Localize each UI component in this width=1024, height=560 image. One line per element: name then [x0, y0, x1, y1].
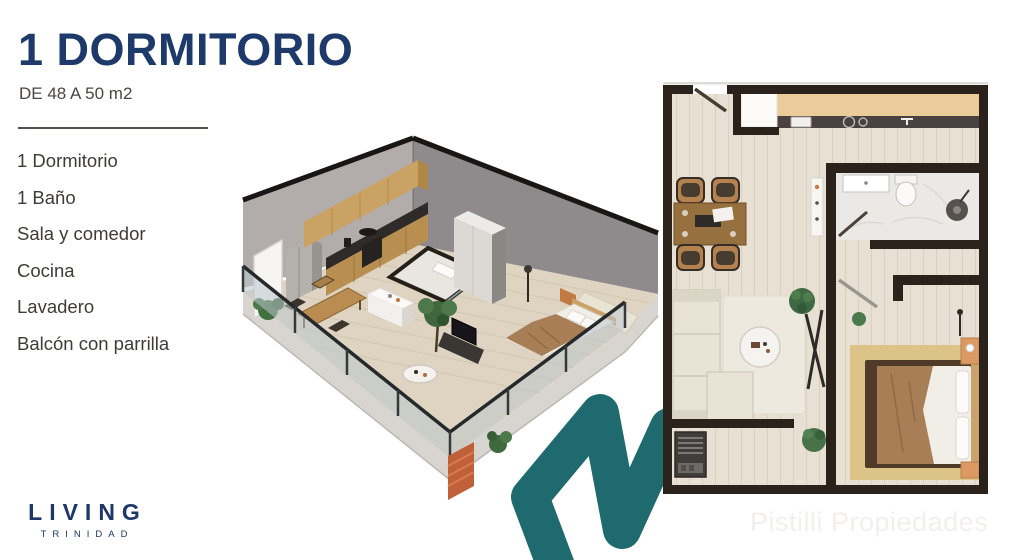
hall-shelf	[811, 178, 823, 236]
watermark: Pistilli Propiedades	[750, 507, 988, 538]
coffee-table-3d	[403, 365, 437, 383]
bathroom-2d	[836, 173, 979, 240]
brand-logo: LIVING TRINIDAD	[16, 499, 152, 540]
top-view-floorplan	[663, 82, 988, 494]
brochure-page: 1 DORMITORIO DE 48 A 50 m2 1 Dormitorio …	[0, 0, 1024, 560]
feature-item: Sala y comedor	[17, 216, 169, 253]
page-subtitle: DE 48 A 50 m2	[19, 84, 132, 104]
feature-item: Balcón con parrilla	[17, 326, 169, 363]
brand-name: LIVING	[23, 499, 152, 526]
laundry-closet	[741, 92, 777, 127]
brand-location: TRINIDAD	[22, 529, 152, 540]
wardrobe	[454, 211, 506, 304]
feature-item: Lavadero	[17, 289, 169, 326]
feature-item: Cocina	[17, 253, 169, 290]
page-title: 1 DORMITORIO	[18, 24, 353, 76]
kitchen-2d	[777, 91, 979, 128]
feature-item: 1 Dormitorio	[17, 143, 169, 180]
feature-item: 1 Baño	[17, 180, 169, 217]
isometric-floorplan	[232, 126, 668, 502]
living-room-2d	[673, 288, 824, 422]
features-list: 1 Dormitorio 1 Baño Sala y comedor Cocin…	[17, 143, 169, 362]
divider-line	[18, 127, 208, 129]
